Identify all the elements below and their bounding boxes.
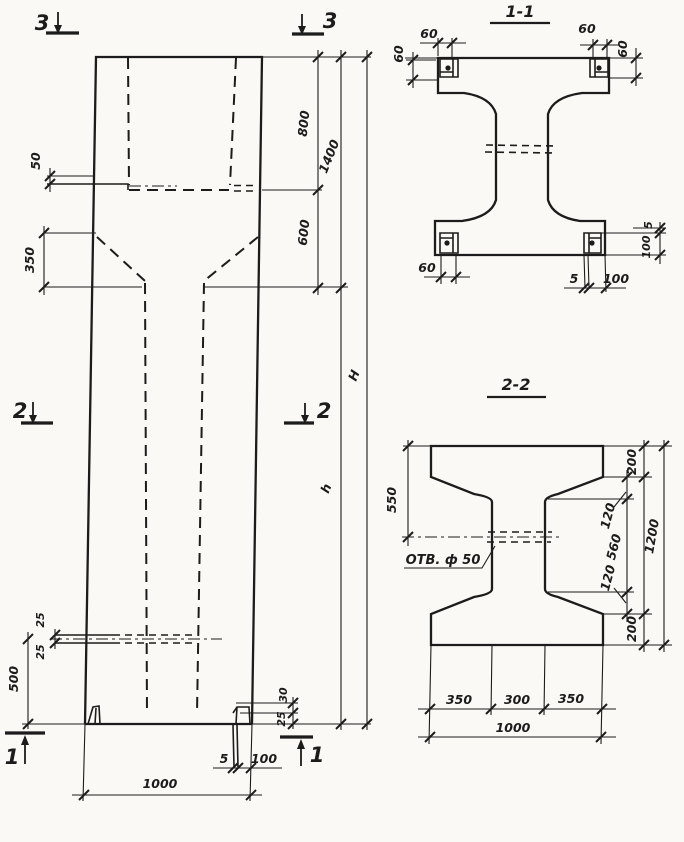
dim-550-label: 550 (384, 487, 399, 513)
anchor-dot-icon (596, 65, 601, 70)
dim-60-top-right-label: 60 (578, 21, 596, 36)
dim-100-bottom-label: 100 (603, 271, 629, 286)
dim-800-label: 800 (295, 109, 313, 137)
dim-500-label: 500 (6, 666, 21, 692)
up-arrow-icon (297, 739, 305, 749)
dim-1000-bottom-label: 1000 (496, 720, 531, 735)
section-marker-1-right: 1 (280, 737, 324, 767)
marker-2-left-label: 2 (13, 399, 28, 423)
marker-2-right-label: 2 (317, 399, 332, 423)
marker-3-right-label: 3 (323, 9, 338, 33)
section-marker-1-left: 1 (5, 733, 45, 769)
dim-100-plate-label: 100 (251, 751, 277, 766)
section-marker-2-left: 2 (13, 399, 53, 424)
dim-25-shoe-label: 25 (275, 711, 288, 727)
section-1-1-view: 1-1 60 60 60 60 60 5 100 5 100 (391, 2, 666, 293)
marker-1-right-label: 1 (310, 743, 325, 767)
drawing-sheet: 3 3 2 2 1 1 (0, 0, 684, 842)
dim-200-bottom-label: 200 (624, 616, 639, 642)
dim-350-right-label: 350 (558, 691, 584, 706)
section-1-1-title: 1-1 (506, 2, 535, 21)
dim-1400-label: 1400 (315, 137, 342, 175)
column-outline (85, 57, 262, 724)
dim-1000-label: 1000 (143, 776, 178, 791)
marker-3-left-label: 3 (35, 11, 50, 35)
dim-5-plate-label: 5 (220, 751, 229, 766)
section-marker-3-left: 3 (35, 11, 79, 35)
dim-600-label: 600 (295, 218, 313, 246)
engineering-drawing-canvas: 3 3 2 2 1 1 (0, 0, 684, 842)
dim-350-left-label: 350 (446, 692, 472, 707)
dim-h-label: h (317, 481, 334, 495)
section-2-2-view: 2-2 550 ОТВ. ф 50 200 120 560 120 200 12… (384, 375, 672, 744)
elevation-view: 3 3 2 2 1 1 (5, 9, 372, 801)
hidden-recess-edges (97, 58, 258, 714)
dim-200-top-label: 200 (624, 449, 639, 475)
section-marker-2-right: 2 (284, 399, 331, 424)
section-2-2-title: 2-2 (502, 375, 531, 394)
dim-25-lower-label: 25 (34, 644, 47, 660)
anchor-dot-icon (589, 240, 594, 245)
section-1-1-outline (435, 58, 609, 255)
dim-5-right-label: 5 (642, 221, 655, 229)
section-2-2-outline (431, 446, 603, 645)
dim-25-upper-label: 25 (34, 612, 47, 628)
section-2-2-dim-lines (403, 440, 672, 744)
dim-H-label: H (345, 367, 363, 383)
dim-120-bottom-label: 120 (597, 563, 618, 592)
dim-5-bottom-label: 5 (570, 271, 579, 286)
dim-60-right-label: 60 (615, 40, 630, 58)
dim-100-right-label: 100 (640, 235, 653, 258)
embedded-plates (440, 59, 608, 253)
dim-120-top-label: 120 (597, 501, 618, 530)
dim-560-label: 560 (603, 532, 624, 561)
up-arrow-icon (21, 735, 29, 745)
section-marker-3-right: 3 (292, 9, 337, 35)
dim-350-label: 350 (22, 247, 37, 273)
dim-300-label: 300 (504, 692, 530, 707)
anchor-dot-icon (445, 65, 450, 70)
hole-note-label: ОТВ. ф 50 (406, 553, 481, 568)
dim-60-bottom-left-label: 60 (418, 260, 436, 275)
dim-60-left-label: 60 (391, 45, 406, 63)
anchor-dot-icon (444, 240, 449, 245)
dim-50-label: 50 (28, 152, 43, 170)
dim-60-top-left-label: 60 (420, 26, 438, 41)
hole-axes (50, 186, 222, 639)
marker-1-left-label: 1 (5, 745, 20, 769)
dim-30-label: 30 (277, 687, 290, 703)
